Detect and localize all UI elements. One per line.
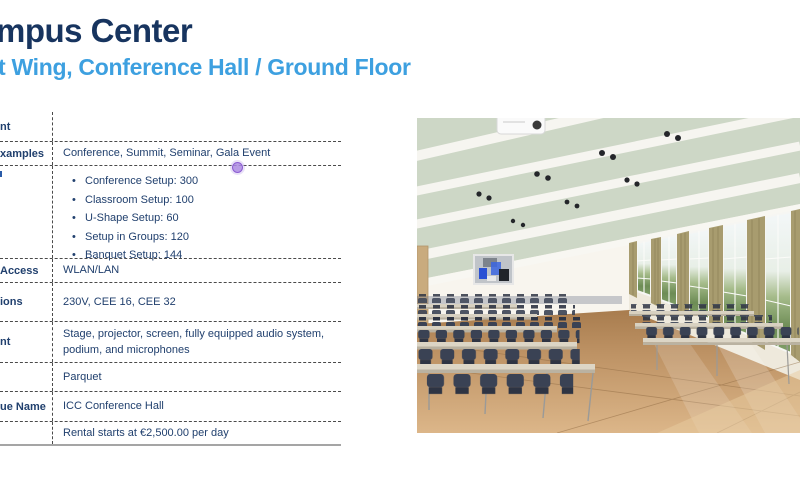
row-label: Access: [0, 259, 53, 282]
table-row: xamples Conference, Summit, Seminar, Gal…: [0, 142, 341, 166]
bullet-icon: [72, 228, 85, 247]
row-value: Conference, Summit, Seminar, Gala Event: [53, 142, 341, 165]
slide-title[interactable]: mpus Center: [0, 13, 192, 49]
table-row: ue Name ICC Conference Hall: [0, 392, 341, 422]
bullet-text: Conference Setup: 300: [85, 172, 198, 191]
row-value: 230V, CEE 16, CEE 32: [53, 283, 341, 321]
row-value: [53, 112, 341, 141]
row-value: ICC Conference Hall: [53, 392, 341, 421]
table-row: ions 230V, CEE 16, CEE 32: [0, 283, 341, 322]
slide: mpus Center t Wing, Conference Hall / Gr…: [0, 0, 800, 500]
row-label: nt: [0, 112, 53, 141]
table-row: Access WLAN/LAN: [0, 259, 341, 283]
bullet-icon: [72, 172, 85, 191]
list-item: Conference Setup: 300: [72, 172, 198, 191]
list-item: Classroom Setup: 100: [72, 191, 198, 210]
row-value: WLAN/LAN: [53, 259, 341, 282]
table-row: Parquet: [0, 363, 341, 392]
row-value: Conference Setup: 300 Classroom Setup: 1…: [53, 166, 341, 258]
table-row: nt: [0, 112, 341, 142]
row-label: ions: [0, 283, 53, 321]
row-value: Rental starts at €2,500.00 per day: [53, 422, 341, 444]
row-label: xamples: [0, 142, 53, 165]
bullet-icon: [72, 209, 85, 228]
slide-subtitle[interactable]: t Wing, Conference Hall / Ground Floor: [0, 55, 411, 80]
row-label: [0, 363, 53, 391]
row-label: nt: [0, 322, 53, 362]
bullet-icon: [72, 191, 85, 210]
conference-hall-photo[interactable]: [417, 118, 800, 433]
bullet-text: U-Shape Setup: 60: [85, 209, 179, 228]
table-row: nt Stage, projector, screen, fully equip…: [0, 322, 341, 363]
list-item: Setup in Groups: 120: [72, 228, 198, 247]
coauthor-presence-cursor: [232, 162, 243, 173]
row-value: Stage, projector, screen, fully equipped…: [53, 322, 341, 362]
bullet-text: Setup in Groups: 120: [85, 228, 189, 247]
bullet-text: Classroom Setup: 100: [85, 191, 194, 210]
venue-info-table[interactable]: nt xamples Conference, Summit, Seminar, …: [0, 112, 341, 446]
table-row: Conference Setup: 300 Classroom Setup: 1…: [0, 166, 341, 259]
row-label: ue Name: [0, 392, 53, 421]
projector: [497, 118, 545, 134]
capacity-bullet-list: Conference Setup: 300 Classroom Setup: 1…: [53, 166, 198, 265]
row-value: Parquet: [53, 363, 341, 391]
row-label: [0, 422, 53, 444]
abstract-painting: [473, 254, 514, 285]
row-label: [0, 166, 53, 258]
conference-hall-photo-art: [417, 118, 800, 433]
label-fragment-sliver: [0, 171, 2, 177]
table-row: Rental starts at €2,500.00 per day: [0, 422, 341, 444]
list-item: U-Shape Setup: 60: [72, 209, 198, 228]
